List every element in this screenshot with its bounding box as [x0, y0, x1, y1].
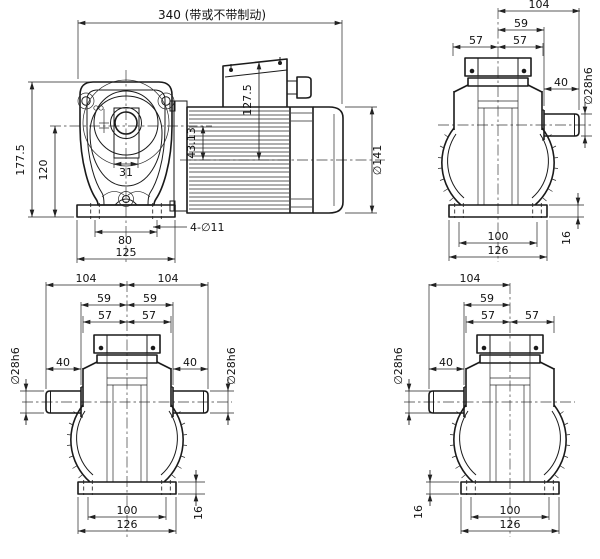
dim-half-57-left: 57	[98, 309, 112, 322]
dim-half-57-right: 57	[525, 309, 539, 322]
dim-box-height: 127.5	[241, 84, 254, 116]
dim-mounting-holes: 4-∅11	[190, 221, 225, 234]
dim-holes-100: 100	[500, 504, 521, 517]
dim-half-57-left: 57	[469, 34, 483, 47]
dim-motor-diameter: ∅141	[371, 145, 384, 176]
side-view-shaft-right: 104 59 57 57 40 ∅28h6 100 126 16	[438, 0, 595, 262]
dim-overall-length: 340 (带或不带制动)	[158, 8, 266, 22]
dim-base-height-16: 16	[412, 505, 425, 519]
cable-gland-neck	[287, 81, 297, 94]
dim-length-104-left: 104	[76, 272, 97, 285]
dim-axis-offset: 43.13	[185, 127, 198, 159]
dim-shaft-length-40-right: 40	[183, 356, 197, 369]
dim-half-57-right: 57	[142, 309, 156, 322]
drawing-sheet: 340 (带或不带制动) 177.5 120 31 80 125 4-∅11 ∅…	[0, 0, 600, 559]
side-view-shaft-left: 104 59 57 57 40 ∅28h6 100 126 16	[392, 272, 575, 537]
dim-holes-100: 100	[117, 504, 138, 517]
dim-base-126: 126	[488, 244, 509, 257]
dim-length-104: 104	[529, 0, 550, 11]
dim-shaft-length-40-left: 40	[56, 356, 70, 369]
dim-keyway-width: 31	[119, 166, 133, 179]
dim-base-126: 126	[117, 518, 138, 531]
dim-base-height-16: 16	[560, 231, 573, 245]
dim-length-104-right: 104	[158, 272, 179, 285]
dim-base-126: 126	[500, 518, 521, 531]
dim-half-57-right: 57	[513, 34, 527, 47]
dim-shaft-diameter: ∅28h6	[392, 347, 405, 385]
dim-boss-59-left: 59	[97, 292, 111, 305]
terminal-box	[223, 57, 311, 107]
front-dimensions: 340 (带或不带制动) 177.5 120 31 80 125 4-∅11 ∅…	[14, 8, 384, 263]
dim-shaft-length-40: 40	[554, 76, 568, 89]
cable-gland	[297, 77, 311, 98]
side-view-double-shaft: 104 104 59 59 57 57 40 40 ∅28h6 ∅28h6 10…	[9, 272, 238, 537]
dim-shaft-diameter-left: ∅28h6	[9, 347, 22, 385]
dim-boss-59: 59	[480, 292, 494, 305]
dim-base-height-16: 16	[192, 506, 205, 520]
dim-boss-59: 59	[514, 17, 528, 30]
technical-drawing: 340 (带或不带制动) 177.5 120 31 80 125 4-∅11 ∅…	[0, 0, 600, 559]
dim-boss-59-right: 59	[143, 292, 157, 305]
dim-length-104: 104	[460, 272, 481, 285]
dim-holes-100: 100	[488, 230, 509, 243]
side-right-dimensions: 104 59 57 57 40 ∅28h6 100 126 16	[449, 0, 595, 261]
dim-total-height: 177.5	[14, 144, 27, 176]
dim-shaft-length-40: 40	[439, 356, 453, 369]
dim-base-width: 125	[116, 246, 137, 259]
dim-shaft-diameter-right: ∅28h6	[225, 347, 238, 385]
dim-axis-height: 120	[37, 160, 50, 181]
dim-half-57-left: 57	[481, 309, 495, 322]
dim-shaft-diameter: ∅28h6	[582, 67, 595, 105]
front-view: 340 (带或不带制动) 177.5 120 31 80 125 4-∅11 ∅…	[14, 8, 385, 263]
